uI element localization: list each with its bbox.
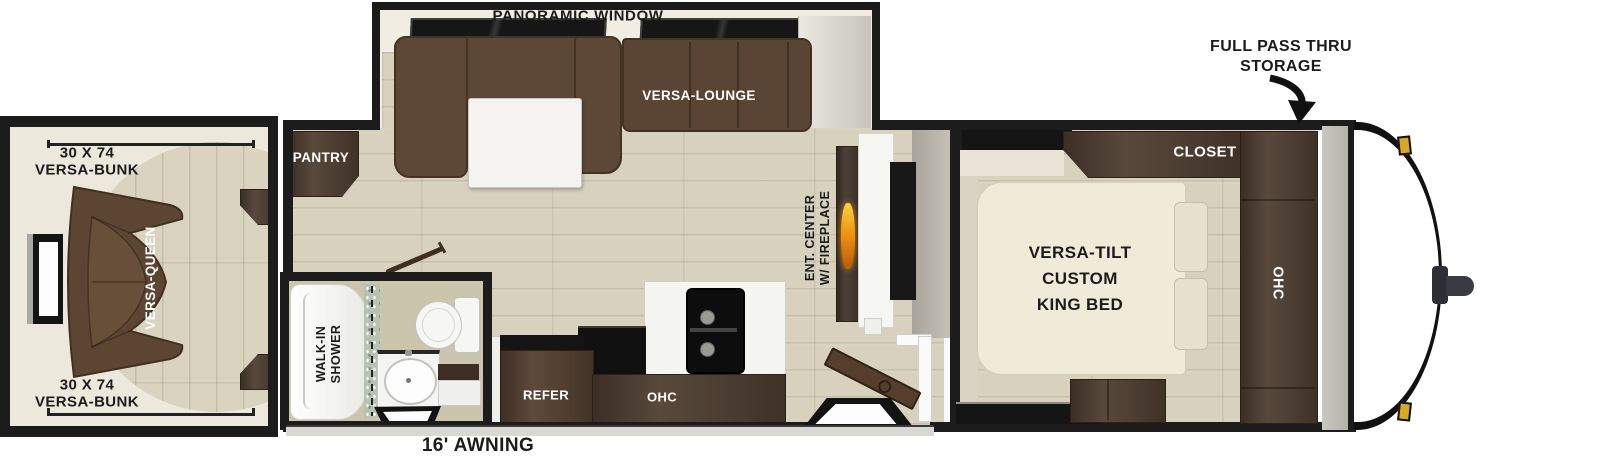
bunk-wall-bottom bbox=[0, 426, 278, 437]
king-bed-label: VERSA-TILT CUSTOM KING BED bbox=[1029, 240, 1132, 318]
bunk-window-glass bbox=[39, 242, 58, 316]
lounge-seam-3 bbox=[787, 42, 789, 128]
kitchen-sink bbox=[686, 288, 745, 374]
panoramic-window-label: PANORAMIC WINDOW bbox=[493, 7, 664, 24]
king-bed-label-line2: CUSTOM bbox=[1029, 266, 1132, 292]
front-storage-panel bbox=[1322, 126, 1350, 430]
king-bed-label-line3: KING BED bbox=[1029, 292, 1132, 318]
nightstand-seam bbox=[1107, 380, 1109, 420]
bath-wall-right bbox=[483, 272, 492, 430]
closet-label: CLOSET bbox=[1173, 143, 1236, 160]
bath-wall-top bbox=[280, 272, 492, 281]
tv-pedestal bbox=[864, 318, 882, 335]
vanity-faucet bbox=[405, 350, 412, 356]
versa-lounge-label: VERSA-LOUNGE bbox=[642, 88, 756, 104]
vanity bbox=[377, 350, 440, 412]
main-wall-top-left bbox=[283, 120, 380, 130]
awning-label: 16' AWNING bbox=[422, 435, 534, 457]
bath-shelf-lower bbox=[438, 380, 481, 406]
bathroom bbox=[280, 272, 492, 430]
bunk-bottom-label-line1: 30 X 74 bbox=[60, 376, 115, 393]
nose-marker-top bbox=[1397, 135, 1412, 155]
bunk-line-top-tick-left bbox=[47, 140, 50, 148]
bunk-line-top-tick-right bbox=[252, 140, 255, 148]
refer-label: REFER bbox=[523, 389, 569, 404]
sink-divider bbox=[690, 328, 737, 332]
walkin-shower-label: WALK-IN SHOWER bbox=[314, 325, 344, 384]
toilet-bowl bbox=[415, 301, 462, 349]
entry-door-frame-side bbox=[918, 336, 932, 422]
bunk-line-bottom-tick-right bbox=[252, 408, 255, 416]
bunk-wall-top bbox=[0, 116, 278, 127]
bath-wall-left bbox=[280, 272, 289, 430]
bunk-line-bottom bbox=[48, 413, 254, 416]
bedroom-wall-band bbox=[960, 150, 1064, 176]
storage-label-line1: FULL PASS THRU bbox=[1210, 37, 1352, 57]
ent-center-label-line2: W/ FIREPLACE bbox=[818, 191, 833, 285]
dinette-table bbox=[468, 98, 582, 188]
bed-nightstand bbox=[1070, 379, 1166, 423]
lounge-seam-2 bbox=[737, 42, 739, 128]
bath-shelf bbox=[438, 364, 479, 380]
king-bed-label-line1: VERSA-TILT bbox=[1029, 240, 1132, 266]
bunk-top-label-line1: 30 X 74 bbox=[60, 144, 115, 161]
bunk-bottom-label-line2: VERSA-BUNK bbox=[35, 393, 139, 410]
bunk-top-label-line2: VERSA-BUNK bbox=[35, 161, 139, 178]
tv-panel bbox=[890, 162, 916, 300]
bunk-wall-left bbox=[0, 116, 10, 437]
hitch-coupler bbox=[1446, 276, 1474, 296]
vanity-drain bbox=[406, 378, 411, 383]
ent-wall-panel bbox=[912, 126, 950, 338]
nose-marker-bottom bbox=[1397, 401, 1412, 421]
ent-center-cabinet bbox=[858, 133, 894, 328]
ohc-seam-bottom bbox=[1241, 387, 1315, 389]
awning-bar bbox=[286, 425, 934, 436]
kitchen-ohc bbox=[592, 374, 786, 423]
bedroom-ohc-label: OHC bbox=[1269, 266, 1286, 299]
floorplan: 30 X 74 VERSA-BUNK 30 X 74 VERSA-BUNK VE… bbox=[0, 0, 1600, 458]
sink-drain-top bbox=[700, 310, 715, 325]
toilet-bowl-inner bbox=[422, 308, 455, 342]
versa-queen-sofa bbox=[58, 179, 198, 385]
walkin-shower-label-line2: SHOWER bbox=[329, 325, 344, 384]
bedroom-door-frame-sliver bbox=[944, 338, 950, 422]
bedroom-window-top bbox=[962, 130, 1072, 152]
walkin-shower-label-line1: WALK-IN bbox=[314, 325, 329, 384]
ent-center-label-line1: ENT. CENTER bbox=[803, 191, 818, 285]
sink-drain-bottom bbox=[700, 342, 715, 357]
bed-pillow-top bbox=[1174, 202, 1208, 272]
storage-arrow-icon bbox=[1262, 74, 1318, 126]
kitchen-ohc-label: OHC bbox=[647, 391, 677, 406]
bed-pillow-bottom bbox=[1174, 278, 1208, 350]
trailer-nose bbox=[1354, 122, 1442, 430]
entry-door-handle bbox=[876, 378, 893, 395]
ent-center-label: ENT. CENTER W/ FIREPLACE bbox=[803, 191, 833, 285]
ohc-seam-top bbox=[1241, 199, 1315, 201]
versa-queen-label: VERSA-QUEEN bbox=[143, 226, 159, 329]
dinette-left-arm bbox=[394, 36, 468, 178]
bunk-wall-right bbox=[268, 116, 278, 437]
versa-lounge-sofa bbox=[622, 38, 812, 132]
fireplace-flame bbox=[841, 203, 855, 269]
storage-label: FULL PASS THRU STORAGE bbox=[1210, 37, 1352, 77]
lounge-seam-1 bbox=[689, 42, 691, 128]
shower-door-track bbox=[371, 286, 373, 416]
bunk-window bbox=[33, 234, 63, 324]
pantry-label: PANTRY bbox=[293, 150, 349, 166]
